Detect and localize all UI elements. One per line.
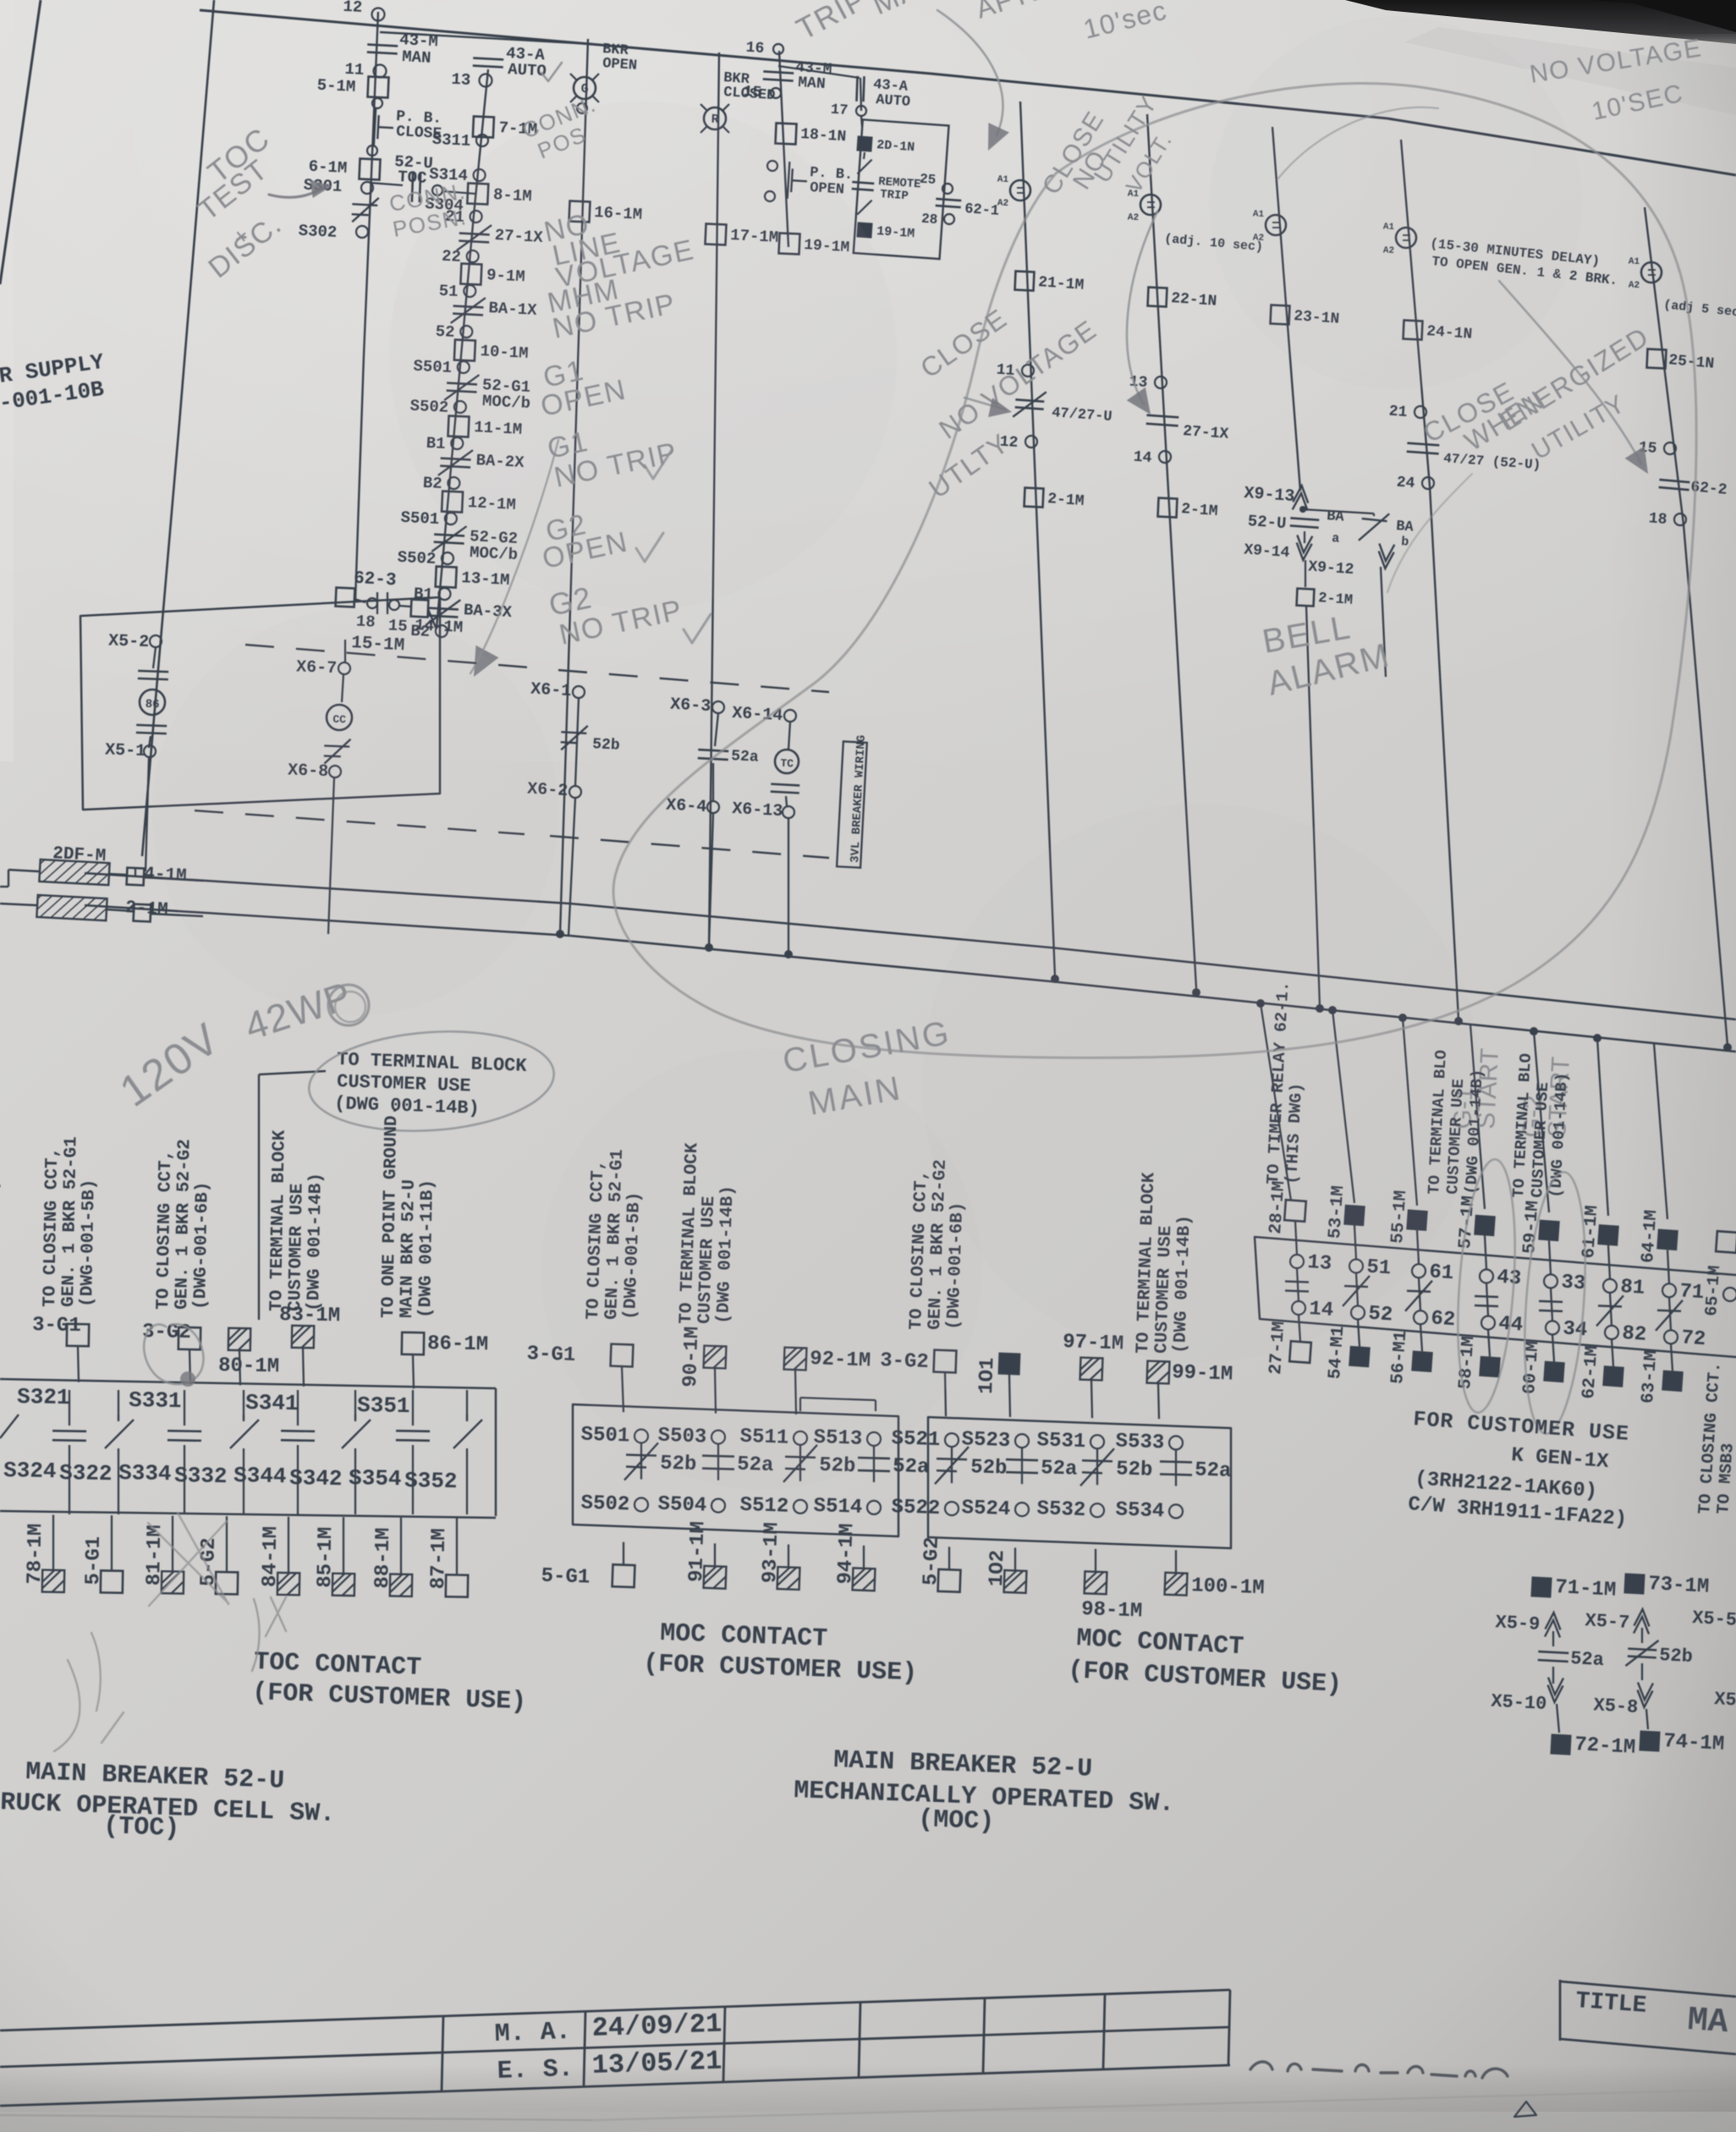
svg-text:13: 13 [451,70,471,90]
svg-text:A1: A1 [1629,256,1640,267]
svg-text:MA: MA [1686,2002,1729,2042]
svg-text:3-G2: 3-G2 [142,1321,191,1344]
svg-text:TITLE: TITLE [1574,1988,1647,2019]
svg-text:(DWG-001-6B): (DWG-001-6B) [191,1182,213,1311]
svg-text:X6-1: X6-1 [530,680,572,701]
svg-text:52b: 52b [1659,1645,1694,1668]
svg-text:56-M1: 56-M1 [1388,1330,1411,1384]
svg-text:65-1M: 65-1M [1702,1265,1725,1316]
svg-text:5-G1: 5-G1 [541,1565,591,1590]
svg-text:TC: TC [780,757,794,771]
svg-text:15: 15 [743,84,762,102]
svg-text:13-1M: 13-1M [461,569,510,590]
svg-text:M. A.: M. A. [494,2018,571,2049]
svg-text:24/09/21: 24/09/21 [591,2008,722,2044]
svg-text:86: 86 [145,698,159,712]
svg-text:E. S.: E. S. [497,2055,574,2086]
svg-text:14: 14 [1133,449,1152,467]
svg-text:80-1M: 80-1M [218,1354,279,1378]
svg-text:52a: 52a [1195,1459,1232,1482]
svg-text:73-1M: 73-1M [1648,1573,1710,1599]
svg-text:62: 62 [1430,1307,1456,1332]
svg-text:83-1M: 83-1M [279,1304,340,1327]
svg-text:62-1M: 62-1M [1579,1345,1602,1399]
svg-text:(DWG 001-11B): (DWG 001-11B) [416,1179,438,1318]
svg-text:A2: A2 [1128,212,1140,223]
svg-text:5-G1: 5-G1 [82,1536,106,1585]
svg-text:S502: S502 [580,1492,630,1517]
svg-text:S532: S532 [1036,1497,1086,1522]
svg-text:52: 52 [1367,1303,1393,1327]
svg-text:X6-4: X6-4 [666,796,707,817]
svg-text:24: 24 [1396,475,1415,492]
svg-text:2D-1N: 2D-1N [876,138,915,155]
svg-text:S341: S341 [245,1390,299,1416]
svg-text:X5-: X5- [1714,1689,1736,1712]
svg-text:X9-12: X9-12 [1308,558,1354,579]
svg-text:54-M1: 54-M1 [1326,1326,1349,1380]
svg-text:(DWG 001-14B): (DWG 001-14B) [305,1173,327,1311]
svg-text:X5-1: X5-1 [105,740,146,761]
svg-text:X6-13: X6-13 [732,799,783,821]
svg-text:52b: 52b [592,736,620,755]
svg-text:S501: S501 [400,508,440,529]
svg-text:S302: S302 [298,222,338,242]
svg-text:S533: S533 [1115,1430,1165,1454]
svg-text:S331: S331 [129,1387,182,1414]
svg-text:S344: S344 [233,1463,287,1489]
svg-text:88-1M: 88-1M [371,1527,395,1588]
svg-text:19-1M: 19-1M [876,224,915,241]
svg-text:X5-8: X5-8 [1593,1695,1639,1718]
svg-text:87-1M: 87-1M [427,1528,451,1589]
svg-text:(MOC): (MOC) [918,1805,995,1837]
svg-text:S342: S342 [289,1465,343,1492]
svg-text:S332: S332 [174,1463,228,1489]
svg-text:2-1M: 2-1M [1318,591,1354,609]
svg-text:B1: B1 [413,585,433,604]
svg-text:X9-14: X9-14 [1244,541,1290,562]
svg-text:63-1M: 63-1M [1639,1349,1662,1404]
svg-text:98-1M: 98-1M [1081,1598,1143,1623]
svg-text:43: 43 [1496,1267,1522,1291]
svg-text:13/05/21: 13/05/21 [591,2046,722,2081]
svg-text:S534: S534 [1115,1498,1165,1523]
svg-text:86-1M: 86-1M [427,1332,488,1356]
svg-text:S531: S531 [1036,1429,1086,1453]
svg-text:62-3: 62-3 [353,569,397,591]
svg-text:2-1M: 2-1M [1047,491,1085,510]
svg-text:64-1M: 64-1M [1639,1209,1662,1263]
svg-text:TOC CONTACT: TOC CONTACT [254,1648,422,1683]
svg-text:12: 12 [343,0,363,17]
svg-text:a: a [1332,531,1340,547]
svg-text:28: 28 [920,212,937,228]
svg-text:93-1M: 93-1M [759,1522,783,1584]
svg-text:S512: S512 [739,1494,789,1519]
svg-text:S322: S322 [59,1460,113,1486]
svg-text:S524: S524 [961,1497,1011,1521]
svg-text:BA-3X: BA-3X [463,601,513,622]
svg-text:BA: BA [1396,519,1415,536]
svg-text:MAN: MAN [402,47,431,68]
svg-text:S351: S351 [357,1393,410,1419]
svg-text:17: 17 [830,102,849,119]
svg-text:82: 82 [1621,1322,1647,1347]
svg-text:5-1M: 5-1M [316,76,356,96]
svg-text:S352: S352 [404,1468,458,1494]
svg-text:S514: S514 [813,1495,863,1519]
svg-text:27-1X: 27-1X [1183,423,1229,443]
svg-text:X6-3: X6-3 [670,695,711,717]
svg-text:6-1M: 6-1M [308,157,348,178]
svg-text:1O1: 1O1 [975,1357,999,1394]
svg-text:52a: 52a [731,748,760,767]
svg-text:18: 18 [1648,510,1667,529]
svg-text:52b: 52b [1116,1458,1153,1481]
svg-text:A2: A2 [997,198,1009,209]
svg-text:94-1M: 94-1M [834,1523,859,1585]
svg-text:52b: 52b [970,1456,1008,1480]
svg-text:21: 21 [1388,404,1408,421]
svg-text:S522: S522 [891,1496,941,1520]
svg-text:X5-9: X5-9 [1495,1612,1541,1635]
svg-text:84-1M: 84-1M [259,1526,283,1587]
svg-text:1O2: 1O2 [986,1550,1009,1587]
svg-text:(TOC): (TOC) [103,1812,180,1844]
svg-text:S502: S502 [397,548,437,569]
svg-text:X9-13: X9-13 [1244,484,1295,507]
svg-text:TRIP: TRIP [880,188,909,203]
svg-text:62-1: 62-1 [964,201,1000,220]
svg-text:(DWG-001-5B): (DWG-001-5B) [78,1179,100,1308]
svg-text:85-1M: 85-1M [314,1527,338,1588]
svg-text:99-1M: 99-1M [1172,1361,1233,1386]
svg-text:2-1M: 2-1M [1181,501,1219,520]
svg-text:OPEN: OPEN [602,56,638,74]
svg-text:X5-10: X5-10 [1491,1691,1547,1715]
svg-text:18-1N: 18-1N [800,126,847,146]
svg-text:S354: S354 [349,1465,402,1492]
svg-text:X5-5: X5-5 [1692,1607,1736,1631]
svg-text:A2: A2 [1629,280,1640,291]
svg-text:52-U: 52-U [1247,512,1287,533]
svg-text:91-1M: 91-1M [685,1521,710,1583]
svg-text:81-1M: 81-1M [143,1525,167,1585]
svg-text:5-G2: 5-G2 [920,1536,944,1586]
svg-text:X5-7: X5-7 [1585,1610,1630,1634]
svg-text:MOC CONTACT: MOC CONTACT [660,1619,828,1654]
svg-text:AUTO: AUTO [508,60,547,80]
svg-text:52a: 52a [1041,1457,1078,1481]
svg-text:A1: A1 [997,174,1009,185]
svg-text:22-1N: 22-1N [1171,290,1217,310]
svg-text:74-1M: 74-1M [1663,1730,1725,1756]
svg-text:34: 34 [1562,1317,1588,1342]
svg-text:52a: 52a [1570,1648,1605,1671]
svg-text:S334: S334 [118,1460,172,1486]
svg-text:25: 25 [919,172,936,188]
svg-text:S321: S321 [17,1384,70,1410]
svg-text:MAN: MAN [798,74,827,93]
svg-text:X5-2: X5-2 [108,631,150,652]
svg-text:X6-14: X6-14 [732,704,783,726]
svg-text:100-1M: 100-1M [1191,1574,1265,1600]
svg-text:21-1M: 21-1M [1038,274,1085,294]
svg-text:71-1M: 71-1M [1555,1576,1617,1602]
svg-text:33: 33 [1560,1271,1586,1295]
svg-text:72-1M: 72-1M [1574,1734,1636,1760]
svg-text:16: 16 [745,40,765,58]
svg-text:78-1M: 78-1M [24,1523,47,1584]
svg-text:S311: S311 [431,130,471,151]
svg-text:3-G1: 3-G1 [32,1314,81,1338]
svg-text:S504: S504 [657,1493,707,1518]
svg-text:S523: S523 [961,1428,1011,1453]
svg-text:5-G2: 5-G2 [197,1537,221,1586]
svg-text:2-1M: 2-1M [125,898,169,920]
svg-text:52a: 52a [893,1455,930,1479]
svg-text:72: 72 [1680,1327,1706,1351]
svg-text:S324: S324 [3,1458,57,1484]
svg-text:AUTO: AUTO [876,92,911,111]
